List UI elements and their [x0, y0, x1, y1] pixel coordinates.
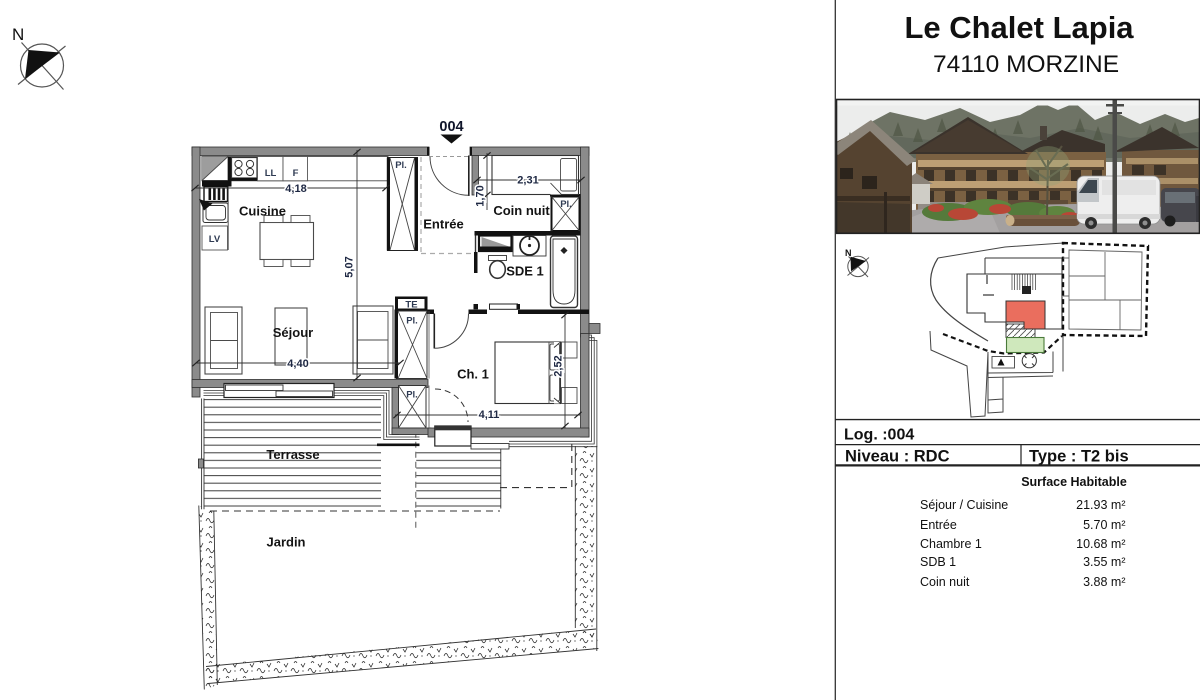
svg-text:TE: TE: [405, 300, 417, 311]
svg-text:74110 MORZINE: 74110 MORZINE: [933, 51, 1119, 78]
svg-text:5.70 m²: 5.70 m²: [1083, 518, 1125, 532]
svg-text:LV: LV: [209, 234, 221, 245]
svg-text:4,18: 4,18: [285, 183, 306, 195]
svg-text:Pl.: Pl.: [395, 160, 407, 171]
svg-text:SDB 1: SDB 1: [920, 555, 956, 569]
svg-text:4,11: 4,11: [479, 409, 500, 421]
svg-text:Cuisine: Cuisine: [239, 204, 286, 219]
svg-text:Log. :004: Log. :004: [844, 427, 914, 444]
svg-text:Terrasse: Terrasse: [266, 447, 319, 462]
svg-text:Chambre 1: Chambre 1: [920, 537, 982, 551]
svg-text:2,31: 2,31: [517, 175, 538, 187]
svg-text:N: N: [845, 248, 852, 258]
svg-text:Coin nuit: Coin nuit: [920, 575, 970, 589]
svg-text:3.55 m²: 3.55 m²: [1083, 555, 1125, 569]
svg-text:21.93 m²: 21.93 m²: [1076, 498, 1125, 512]
svg-text:Ch. 1: Ch. 1: [457, 367, 489, 382]
svg-text:F: F: [293, 168, 299, 179]
svg-text:Coin nuit: Coin nuit: [493, 203, 550, 218]
svg-text:N: N: [12, 25, 24, 44]
svg-text:LL: LL: [265, 168, 277, 179]
svg-text:Niveau : RDC: Niveau : RDC: [845, 448, 950, 466]
svg-text:Pl.: Pl.: [406, 316, 418, 327]
svg-text:2,52: 2,52: [553, 355, 565, 376]
svg-text:004: 004: [439, 119, 463, 135]
svg-text:3.88 m²: 3.88 m²: [1083, 575, 1125, 589]
svg-text:Entrée: Entrée: [423, 217, 463, 232]
svg-text:1,70: 1,70: [475, 185, 487, 206]
svg-text:SDE 1: SDE 1: [506, 264, 544, 279]
svg-text:Entrée: Entrée: [920, 518, 957, 532]
svg-text:Type : T2 bis: Type : T2 bis: [1029, 448, 1129, 466]
svg-text:Jardin: Jardin: [266, 535, 305, 550]
svg-text:Pl.: Pl.: [560, 199, 572, 210]
svg-text:10.68 m²: 10.68 m²: [1076, 537, 1125, 551]
svg-text:Le Chalet Lapia: Le Chalet Lapia: [904, 10, 1134, 45]
svg-text:Surface Habitable: Surface Habitable: [1021, 475, 1127, 489]
svg-text:4,40: 4,40: [287, 358, 308, 370]
svg-text:5,07: 5,07: [344, 256, 356, 277]
svg-text:Séjour / Cuisine: Séjour / Cuisine: [920, 498, 1008, 512]
svg-text:Séjour: Séjour: [273, 325, 313, 340]
svg-text:Pl.: Pl.: [406, 390, 418, 401]
